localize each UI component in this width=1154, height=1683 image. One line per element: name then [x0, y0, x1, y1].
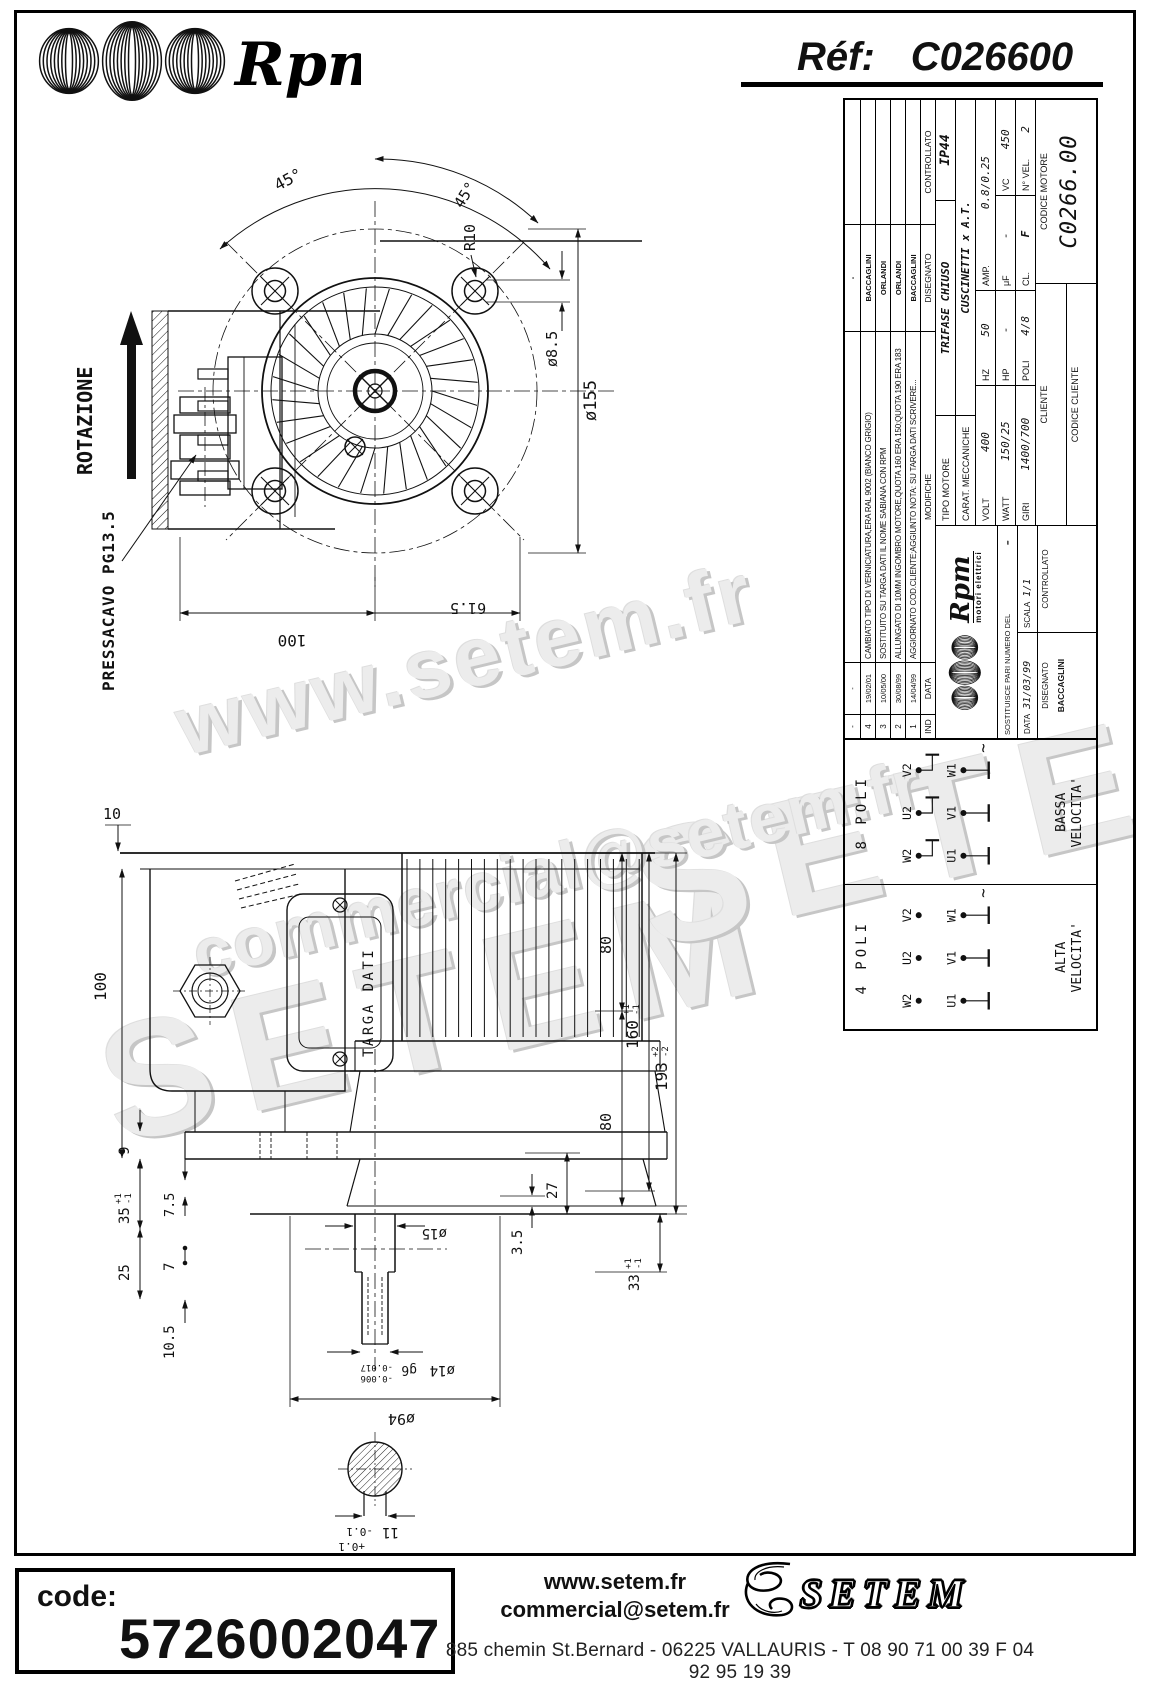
client-code-label: CODICE CLIENTE [1067, 284, 1097, 525]
ac-symbol: ~ [975, 888, 993, 897]
svg-text:ø94: ø94 [388, 1410, 415, 1428]
svg-text:-1: -1 [634, 1258, 644, 1269]
rpm-logo-subtext: motori elettrici [973, 551, 983, 623]
dim-label: +0.1 11 -0.1 [339, 1524, 400, 1553]
ref-value: C026600 [911, 35, 1073, 80]
dim-label: 35 +1 -1 [114, 1193, 134, 1224]
targa-plate [287, 894, 393, 1071]
dim-label: 27 [545, 1182, 561, 1199]
motor-type-row: TIPO MOTORE TRIFASE CHIUSO IP44 [936, 100, 956, 525]
electrical-row-3: GIRI1400/700 POLI4/8 CL.F N° VEL.2 [1016, 100, 1036, 525]
dim-label: 193 +2 -2 [651, 1046, 671, 1091]
code-box: code: 5726002047 [15, 1568, 455, 1674]
side-view-drawing: 10 100 80 80 160 +1 -1 193 +2 -2 27 3.5 … [55, 719, 715, 1556]
svg-text:+1: +1 [622, 1004, 632, 1015]
sheet-frame: www.setem.fr SETEM SETEM commercial@sete… [14, 10, 1136, 1556]
dim-label: ø15 [422, 1225, 447, 1241]
svg-text:+2: +2 [651, 1046, 661, 1057]
svg-text:-0.017: -0.017 [360, 1362, 393, 1372]
svg-text:+1: +1 [114, 1193, 124, 1204]
terminal-label: W2 [900, 848, 914, 862]
titleblock-panel: 4 POLI W2 U2 V2 U1 V1 W1 ~ [843, 98, 1098, 1031]
rpm-coils-icon [949, 635, 980, 709]
terminal-label: W1 [945, 908, 959, 922]
dim-label: 25 [117, 1264, 133, 1281]
rotation-label: ROTAZIONE [73, 367, 97, 475]
replaces-row: SOSTITUISCE PARI NUMERO DEL - [998, 526, 1018, 738]
modification-history: - - - 4 19/02/01 CAMBIATO TIPO DI VERNIC… [845, 100, 936, 738]
dim-label: R10 [461, 224, 479, 251]
mechanical-row: CARAT. MECCANICHE CUSCINETTI x A.T. [956, 100, 976, 525]
dim-label: 10.5 [162, 1325, 178, 1359]
wiring-4poli-diagram: W2 U2 V2 U1 V1 W1 ~ [899, 887, 1024, 1028]
dim-label: 45° [450, 179, 480, 212]
terminal-label: U2 [900, 806, 914, 820]
rpm-logo-text: Rpm [950, 551, 973, 623]
history-row: 3 10/05/00 SOSTITUITO SU TARGA DATI IL N… [875, 100, 890, 738]
terminal-box-outline [150, 869, 345, 1091]
dim-label: 45° [271, 164, 305, 194]
dim-label: ø94 [388, 1410, 415, 1428]
date-scale-row: DATA31/03/99 SCALA1/1 [1018, 526, 1038, 738]
dim-label: 80 [597, 1113, 615, 1131]
svg-text:33: 33 [627, 1274, 643, 1291]
rotation-arrow [127, 343, 136, 479]
svg-text:ø14: ø14 [430, 1362, 455, 1378]
dim-label: ø155 [581, 380, 601, 421]
svg-text:-1: -1 [124, 1193, 134, 1204]
speed-label: ALTA VELOCITA' [1054, 922, 1087, 992]
terminal-label: V2 [900, 908, 914, 922]
dim-label: 33 +1 -1 [624, 1258, 644, 1291]
wiring-4poli: 4 POLI W2 U2 V2 U1 V1 W1 ~ [845, 885, 1096, 1030]
wiring-diagrams: 4 POLI W2 U2 V2 U1 V1 W1 ~ [845, 738, 1096, 1029]
rpm-logo: Rpm [31, 19, 361, 110]
dim-label: 9 [117, 1147, 133, 1155]
history-row: 4 19/02/01 CAMBIATO TIPO DI VERNICIATURA… [860, 100, 875, 738]
rpm-logo-text: Rpm [233, 30, 361, 100]
drawing-sheet: www.setem.fr SETEM SETEM commercial@sete… [0, 0, 1154, 1683]
dim-label: 100 [91, 972, 110, 1001]
svg-text:-0.006: -0.006 [360, 1373, 393, 1383]
svg-text:-0.1: -0.1 [347, 1525, 374, 1538]
footer-address: 885 chemin St.Bernard - 06225 VALLAURIS … [440, 1640, 1040, 1683]
dim-label: ø8.5 [543, 331, 561, 367]
history-row: - - - [845, 100, 860, 738]
client-label: CLIENTE [1036, 284, 1067, 525]
history-row: 2 30/08/99 ALLUNGATO DI 10MM INGOMBRO MO… [890, 100, 905, 738]
wiring-title: 4 POLI [854, 920, 870, 995]
dim-label: 160 +1 -1 [622, 1004, 642, 1049]
rpm-coils-icon [40, 22, 225, 101]
terminal-label: V1 [945, 951, 959, 965]
terminal-label: U2 [900, 951, 914, 965]
titleblock-rpm-logo: Rpm motori elettrici [936, 526, 998, 738]
dim-label: 3.5 [510, 1230, 526, 1255]
svg-text:-2: -2 [661, 1046, 671, 1057]
electrical-row-2: WATT150/25 HP- μF- VC450 [996, 100, 1016, 525]
footer-email: commercial@setem.fr [455, 1596, 775, 1624]
dim-label: 80 [597, 936, 615, 954]
speed-label: BASSA VELOCITA' [1054, 777, 1087, 847]
svg-text:160: 160 [623, 1020, 642, 1049]
code-value: 5726002047 [119, 1606, 451, 1671]
history-row: 1 14/04/99 AGGIORNATO COD.CLIENTE;AGGIUN… [905, 100, 920, 738]
drawn-checked-row: DISEGNATOBACCAGLINI CONTROLLATO [1038, 526, 1096, 738]
dim-label: 7.5 [162, 1193, 178, 1217]
front-view-drawing: 45° 45° R10 ø8.5 ø155 100 61.5 ROTAZIONE… [30, 129, 670, 714]
footer-web: www.setem.fr [455, 1568, 775, 1596]
terminal-label: W1 [945, 763, 959, 777]
history-header-row: IND DATA MODIFICHE DISEGNATO CONTROLLATO [920, 100, 935, 738]
dim-label: 7 [162, 1263, 178, 1271]
wiring-8poli: 8 POLI W2 U2 V2 U1 V1 W1 ~ [845, 740, 1096, 885]
setem-swoosh-icon [738, 1558, 798, 1624]
client-cells: CLIENTE CODICE CLIENTE [1036, 283, 1096, 525]
ref-label: Réf: [797, 35, 875, 80]
svg-text:+1: +1 [624, 1258, 634, 1269]
svg-text:ø15: ø15 [422, 1225, 447, 1241]
svg-text:-1: -1 [632, 1004, 642, 1015]
svg-text:35: 35 [117, 1207, 133, 1224]
wires [235, 864, 301, 908]
ac-symbol: ~ [975, 743, 993, 752]
svg-text:+0.1: +0.1 [339, 1540, 366, 1553]
dim-label: 61.5 [450, 599, 486, 617]
svg-text:11: 11 [382, 1524, 399, 1540]
gland-label: PRESSACAVO PG13.5 [99, 510, 118, 691]
terminal-label: U1 [945, 993, 959, 1007]
title-block: - - - 4 19/02/01 CAMBIATO TIPO DI VERNIC… [845, 100, 1096, 738]
motor-code-value: C0266.00 [1057, 100, 1082, 283]
terminal-label: U1 [945, 848, 959, 862]
dim-label: 100 [278, 631, 307, 650]
dim-label: ø14 g6 -0.006 -0.017 [360, 1362, 455, 1383]
electrical-row-1: VOLT400 HZ50 AMP.0.8/0.25 [976, 100, 996, 525]
terminal-label: V1 [945, 806, 959, 820]
contact-block: www.setem.fr commercial@setem.fr [455, 1568, 775, 1623]
wiring-8poli-diagram: W2 U2 V2 U1 V1 W1 ~ [899, 742, 1024, 883]
wiring-title: 8 POLI [854, 775, 870, 850]
terminal-label: V2 [900, 763, 914, 777]
motor-code-cell: CODICE MOTORE C0266.00 [1036, 100, 1096, 283]
terminal-label: W2 [900, 993, 914, 1007]
dim-label: 10 [103, 805, 121, 823]
svg-text:g6: g6 [401, 1362, 417, 1377]
setem-logo-text: SETEM [800, 1570, 971, 1617]
reference-block: Réf: C026600 [741, 35, 1103, 87]
svg-text:193: 193 [652, 1062, 671, 1091]
targa-label: TARGA DATI [361, 948, 377, 1057]
protection-rating: IP44 [938, 100, 953, 200]
